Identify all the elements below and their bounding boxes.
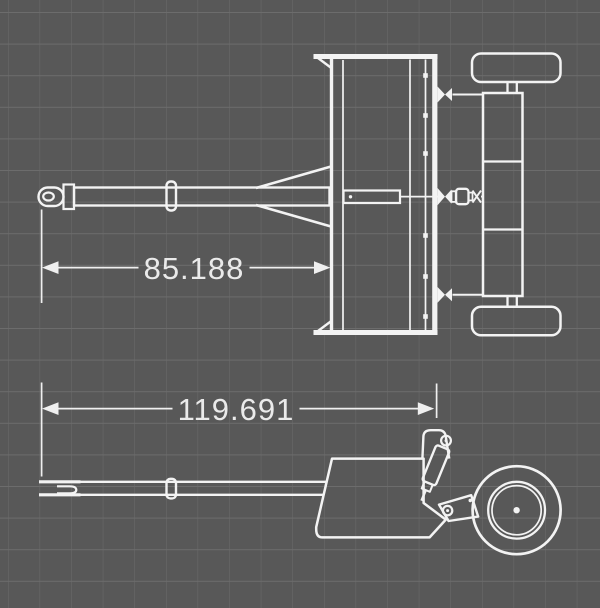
wheel-hub <box>513 507 519 513</box>
blueprint-canvas: 85.188 119.691 <box>0 0 600 608</box>
cylinder-top-pin-dot <box>445 439 448 442</box>
technical-drawing: 85.188 119.691 <box>0 0 600 608</box>
grid-overlay <box>0 0 600 608</box>
dimension-value-side: 119.691 <box>178 392 295 427</box>
link-bar-bolt <box>349 195 352 198</box>
axle-arm-pivot-dot <box>446 509 449 512</box>
dimension-value-top: 85.188 <box>144 251 245 286</box>
